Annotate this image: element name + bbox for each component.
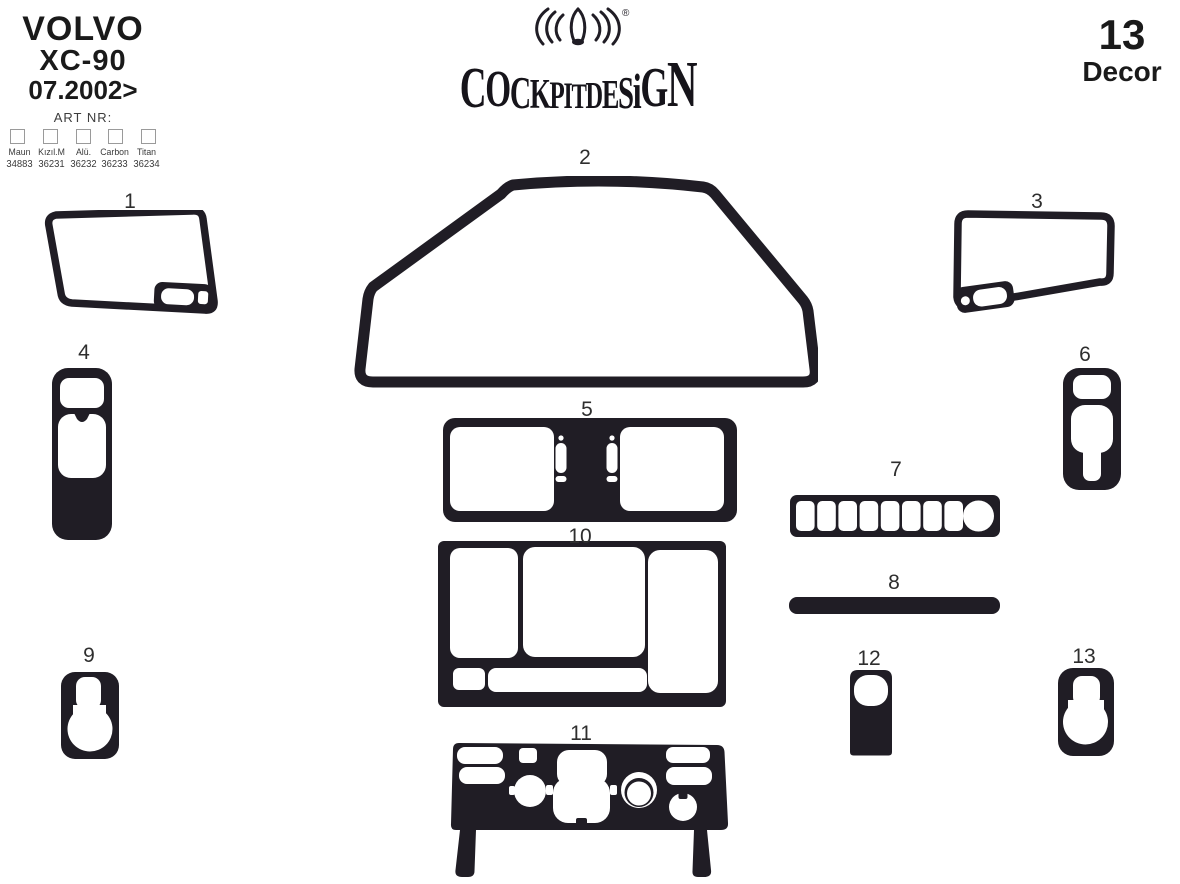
piece-4-shape [51, 367, 113, 541]
finish-checkbox-titan [141, 129, 156, 144]
finish-option: Carbon 36233 [99, 147, 130, 170]
finish-code: 36233 [101, 158, 129, 170]
piece-2-number: 2 [579, 147, 591, 168]
vehicle-model: XC-90 [4, 46, 162, 76]
logo-letter: S [618, 75, 633, 112]
vehicle-make: VOLVO [4, 12, 162, 46]
piece-1-shape [42, 210, 220, 318]
finish-checkbox-alu [76, 129, 91, 144]
piece-3 [946, 210, 1124, 318]
piece-4 [51, 367, 113, 541]
piece-12-shape [846, 669, 896, 757]
piece-11 [449, 740, 729, 884]
piece-9-number: 9 [83, 645, 95, 666]
logo-letter: E [602, 78, 618, 112]
finish-option: Maun 34883 [4, 147, 35, 170]
piece-11-shape [449, 740, 729, 884]
vehicle-date: 07.2002> [4, 76, 162, 105]
piece-10 [436, 539, 728, 709]
finish-name: Kızıl.M [37, 147, 66, 158]
piece-7-number: 7 [890, 459, 902, 480]
door-handle-cutout [153, 282, 212, 312]
piece-5-shape [442, 417, 738, 523]
finish-labels: Maun 34883 Kızıl.M 36231 Alü. 36232 Carb… [4, 147, 162, 170]
piece-6-number: 6 [1079, 344, 1091, 365]
logo-letter: C [510, 74, 530, 112]
piece-3-shape [946, 210, 1124, 318]
finish-code: 36231 [37, 158, 65, 170]
piece-1 [42, 210, 220, 318]
registered-mark: ® [622, 8, 629, 19]
piece-2-shape [354, 176, 818, 388]
logo-letter: G [640, 66, 667, 112]
logo-letter: I [564, 82, 572, 112]
piece-11-number: 11 [570, 723, 592, 744]
logo-letter: K [530, 78, 550, 112]
finish-checkbox-row [4, 129, 162, 144]
logo-letter: D [586, 81, 602, 112]
piece-5 [442, 417, 738, 523]
finish-code: 36234 [133, 158, 161, 170]
piece-4-number: 4 [78, 342, 90, 363]
piece-12-number: 12 [857, 648, 880, 669]
art-nr-label: ART NR: [4, 110, 162, 125]
piece-13-number: 13 [1072, 646, 1095, 667]
finish-name: Carbon [100, 147, 129, 158]
piece-12 [846, 669, 896, 757]
logo-letter: P [550, 80, 564, 112]
logo-letter: N [667, 58, 696, 112]
piece-3-number: 3 [1031, 191, 1043, 212]
finish-name: Maun [5, 147, 34, 158]
finish-name: Alü. [69, 147, 98, 158]
finish-checkbox-maun [10, 129, 25, 144]
piece-6-shape [1062, 367, 1122, 491]
piece-6 [1062, 367, 1122, 491]
piece-8-number: 8 [888, 572, 900, 593]
piece-2 [354, 176, 818, 388]
piece-13-shape [1056, 664, 1118, 762]
decor-count: 13 [1066, 14, 1178, 56]
piece-13 [1056, 664, 1118, 762]
piece-9-shape [60, 671, 120, 761]
finish-option: Kızıl.M 36231 [36, 147, 67, 170]
product-sheet: VOLVO XC-90 07.2002> ART NR: Maun 34883 … [0, 0, 1180, 884]
piece-7-shape [789, 494, 1001, 538]
logo-text: COCKPITDESiGN [482, 20, 674, 112]
piece-5-number: 5 [581, 399, 593, 420]
finish-option: Alü. 36232 [68, 147, 99, 170]
logo-letter: T [571, 82, 585, 112]
finish-code: 36232 [69, 158, 97, 170]
logo-letter: C [460, 64, 486, 112]
finish-option: Titan 36234 [131, 147, 162, 170]
finish-checkbox-carbon [108, 129, 123, 144]
piece-9 [60, 671, 120, 761]
finish-checkbox-kizil [43, 129, 58, 144]
logo-letter: i [633, 71, 641, 112]
piece-7 [789, 494, 1001, 538]
piece-1-number: 1 [124, 191, 136, 212]
vehicle-info: VOLVO XC-90 07.2002> ART NR: Maun 34883 … [4, 12, 162, 170]
piece-10-shape [436, 539, 728, 709]
piece-10-number: 10 [568, 526, 591, 547]
decor-count-block: 13 Decor [1066, 14, 1178, 86]
finish-name: Titan [132, 147, 161, 158]
logo-letter: O [485, 69, 510, 112]
piece-8 [789, 597, 1000, 614]
decor-label: Decor [1066, 58, 1178, 86]
finish-code: 34883 [6, 158, 34, 170]
brand-logo: ® COCKPITDESiGN [428, 6, 728, 116]
